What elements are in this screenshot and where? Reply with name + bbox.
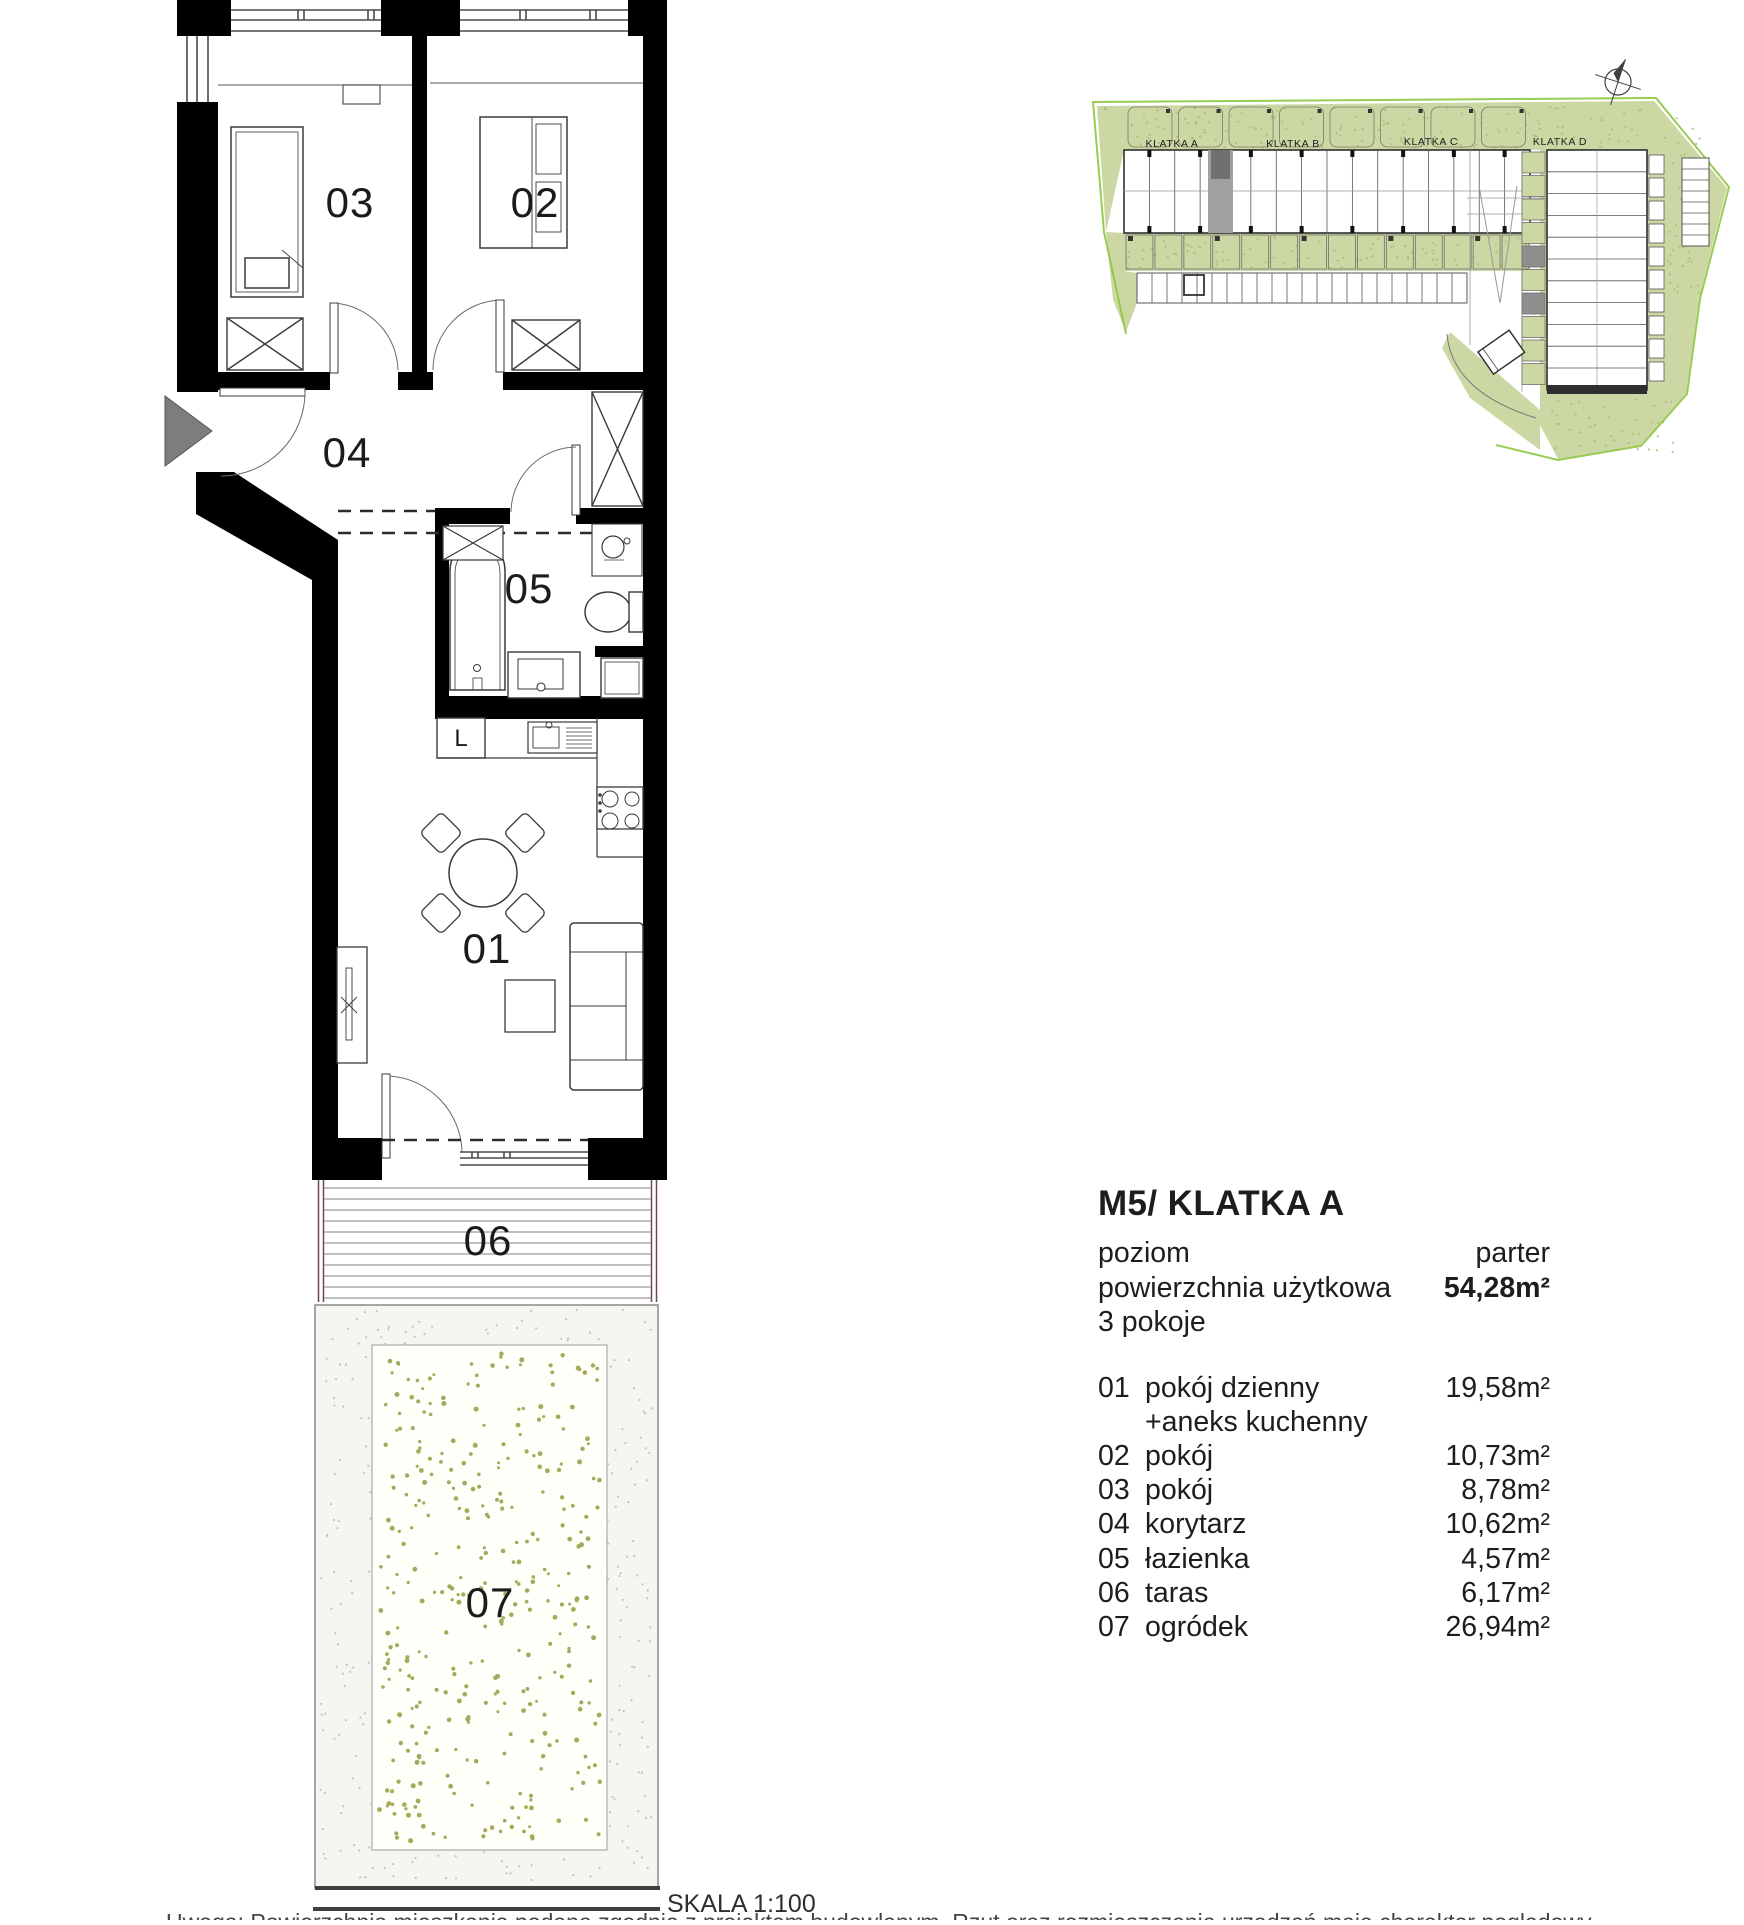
room-area: 26,94m² xyxy=(1445,1610,1550,1644)
room-row-01: 01 pokój dzienny 19,58m² xyxy=(1098,1371,1550,1405)
room-no: 04 xyxy=(1098,1507,1145,1541)
site-building-wing xyxy=(1522,150,1664,394)
room-no: 06 xyxy=(1098,1576,1145,1610)
site-parking xyxy=(1137,273,1467,303)
room-row-05: 05 łazienka 4,57m² xyxy=(1098,1542,1550,1576)
site-parking-east xyxy=(1682,158,1709,246)
footer-note: Uwaga: Powierzchnia mieszkania podana zg… xyxy=(166,1909,1596,1920)
living-window xyxy=(460,1152,588,1165)
summary-row-area: powierzchnia użytkowa 54,28m² xyxy=(1098,1271,1550,1306)
info-panel: M5/ KLATKA A poziom parter powierzchnia … xyxy=(1098,1184,1550,1644)
room-no: 02 xyxy=(1098,1439,1145,1473)
room-area: 19,58m² xyxy=(1445,1371,1550,1405)
site-plan: KLATKA A KLATKA B KLATKA C KLATKA D xyxy=(1093,52,1729,460)
apartment-title: M5/ KLATKA A xyxy=(1098,1184,1550,1224)
level-label: poziom xyxy=(1098,1236,1190,1271)
room-row-06: 06 taras 6,17m² xyxy=(1098,1576,1550,1610)
toilet xyxy=(585,592,643,632)
room-name: pokój xyxy=(1145,1439,1445,1473)
room-name: ogródek xyxy=(1145,1610,1445,1644)
klatka-a-label: KLATKA A xyxy=(1145,138,1198,150)
wardrobe-room-02 xyxy=(512,320,580,370)
door-room-03 xyxy=(330,303,398,373)
room-area: 6,17m² xyxy=(1461,1576,1550,1610)
room-label-06: 06 xyxy=(464,1217,513,1264)
room-name: pokój dzienny xyxy=(1145,1371,1445,1405)
room-area: 10,62m² xyxy=(1445,1507,1550,1541)
kitchen-sink xyxy=(528,722,597,753)
room-label-04: 04 xyxy=(323,429,372,476)
summary-row-rooms: 3 pokoje xyxy=(1098,1305,1550,1340)
room-area: 4,57m² xyxy=(1461,1542,1550,1576)
room-name: korytarz xyxy=(1145,1507,1445,1541)
terrace-door xyxy=(382,1074,462,1158)
bed-room-03 xyxy=(231,127,303,297)
room-no: 05 xyxy=(1098,1542,1145,1576)
bathtub xyxy=(450,549,505,690)
room-name: taras xyxy=(1145,1576,1461,1610)
room-label-05: 05 xyxy=(505,565,554,612)
room-area: 8,78m² xyxy=(1461,1473,1550,1507)
washing-machine xyxy=(601,658,643,698)
room-no: 07 xyxy=(1098,1610,1145,1644)
stove xyxy=(597,787,643,829)
summary-row-level: poziom parter xyxy=(1098,1236,1550,1271)
room-name: pokój xyxy=(1145,1473,1461,1507)
level-value: parter xyxy=(1476,1236,1550,1271)
room-name: łazienka xyxy=(1145,1542,1461,1576)
dining-set xyxy=(420,812,546,934)
room-row-07: 07 ogródek 26,94m² xyxy=(1098,1610,1550,1644)
bathroom-door xyxy=(511,445,580,515)
bath-sink xyxy=(508,652,580,698)
room-list: 01 pokój dzienny 19,58m² +aneks kuchenny… xyxy=(1098,1371,1550,1645)
side-window xyxy=(177,36,218,102)
floor-plan: 03 02 04 05 01 06 07 L xyxy=(165,0,667,1911)
room-row-02: 02 pokój 10,73m² xyxy=(1098,1439,1550,1473)
room-label-02: 02 xyxy=(511,179,560,226)
entrance-door xyxy=(220,388,305,476)
tv-cabinet xyxy=(337,947,367,1063)
room-label-03: 03 xyxy=(326,179,375,226)
room-label-07: 07 xyxy=(466,1579,515,1626)
site-building-main xyxy=(1124,150,1530,233)
fridge-label: L xyxy=(454,725,467,752)
bath-shelf xyxy=(443,526,503,560)
washbasin xyxy=(592,524,642,576)
room-label-01: 01 xyxy=(463,925,512,972)
sofa xyxy=(570,923,643,1090)
coffee-table xyxy=(505,980,555,1032)
rooms-count-label: 3 pokoje xyxy=(1098,1305,1206,1340)
closet-band xyxy=(218,83,643,104)
klatka-d-label: KLATKA D xyxy=(1533,136,1587,148)
klatka-c-label: KLATKA C xyxy=(1404,136,1458,148)
room-area: 10,73m² xyxy=(1445,1439,1550,1473)
room-no: 03 xyxy=(1098,1473,1145,1507)
wardrobe-room-03 xyxy=(227,318,303,370)
page: { "plan": { "room_labels": { "r01": "01"… xyxy=(0,0,1744,1920)
room-row-01-extra: +aneks kuchenny xyxy=(1145,1405,1550,1439)
usable-area-label: powierzchnia użytkowa xyxy=(1098,1271,1391,1306)
entrance-arrow-icon xyxy=(165,396,212,466)
room-row-03: 03 pokój 8,78m² xyxy=(1098,1473,1550,1507)
klatka-b-label: KLATKA B xyxy=(1266,138,1320,150)
usable-area-value: 54,28m² xyxy=(1444,1271,1550,1306)
corridor-wardrobe xyxy=(592,392,643,506)
room-no: 01 xyxy=(1098,1371,1145,1405)
room-row-04: 04 korytarz 10,62m² xyxy=(1098,1507,1550,1541)
door-room-02 xyxy=(433,300,504,372)
